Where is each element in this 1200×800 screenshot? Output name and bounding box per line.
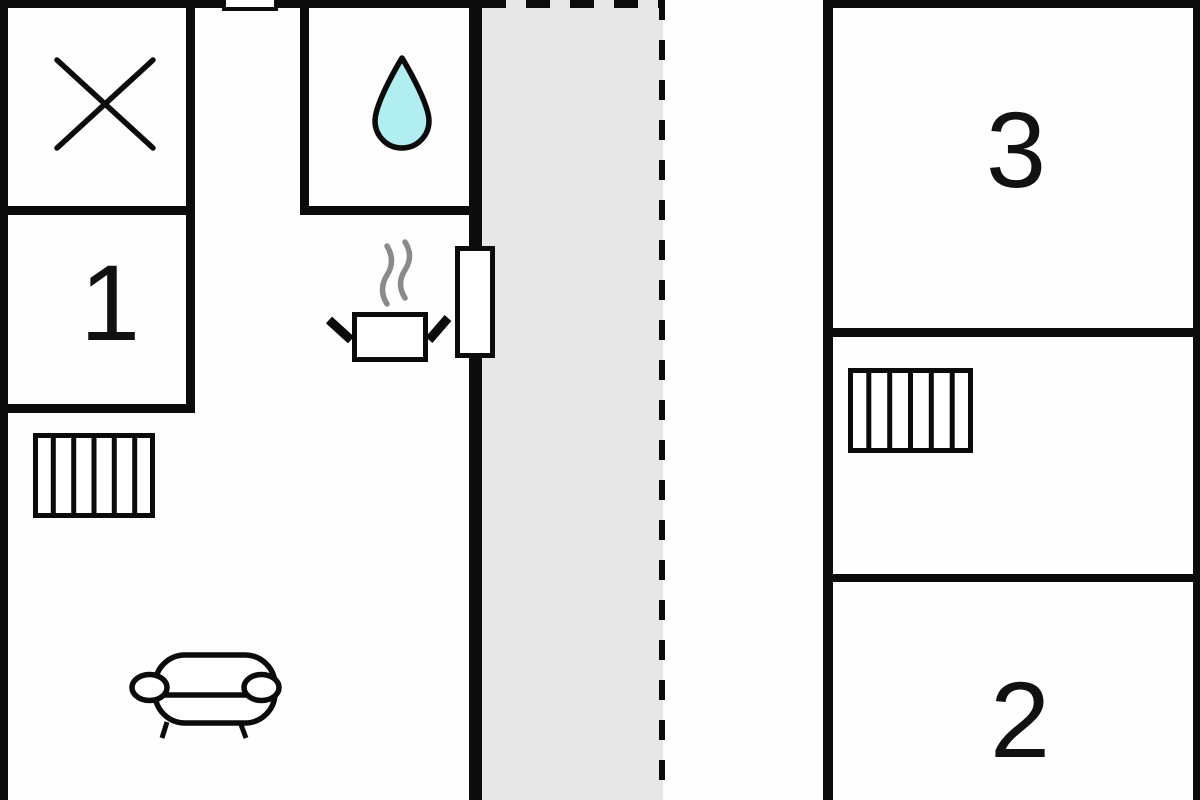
room2-top-wall [823,574,1200,582]
left-building-wall-right [469,0,482,800]
cooking-pot-icon [326,308,452,366]
bathroom-bottom-wall [300,206,469,215]
floor-plan-canvas: 1 3 2 [0,0,1200,800]
right-building-wall-left [823,0,833,800]
right-building-wall-top [823,0,1200,8]
room2-label: 2 [990,666,1050,774]
entrance-door-icon [222,0,278,11]
sofa-icon [128,650,283,742]
room3-label: 3 [986,96,1046,204]
stairs-icon-left [33,433,155,518]
room3-bottom-wall [823,328,1200,337]
terrace-area [482,0,663,800]
left-building-wall-left [0,0,8,800]
room1-bottom-wall [0,404,195,413]
door-icon [455,246,495,358]
room1-label: 1 [80,249,140,357]
x-room-bottom-wall [0,206,195,215]
left-building-inner-wall-vertical-b [300,0,309,215]
terrace-dashed-border-right [659,0,665,800]
stairs-icon-right [848,368,973,453]
terrace-dashed-border-top [482,0,664,8]
water-drop-icon [369,54,435,153]
right-building-wall-right [1193,0,1200,800]
steam-icon [374,238,416,308]
x-mark-icon [53,56,157,152]
